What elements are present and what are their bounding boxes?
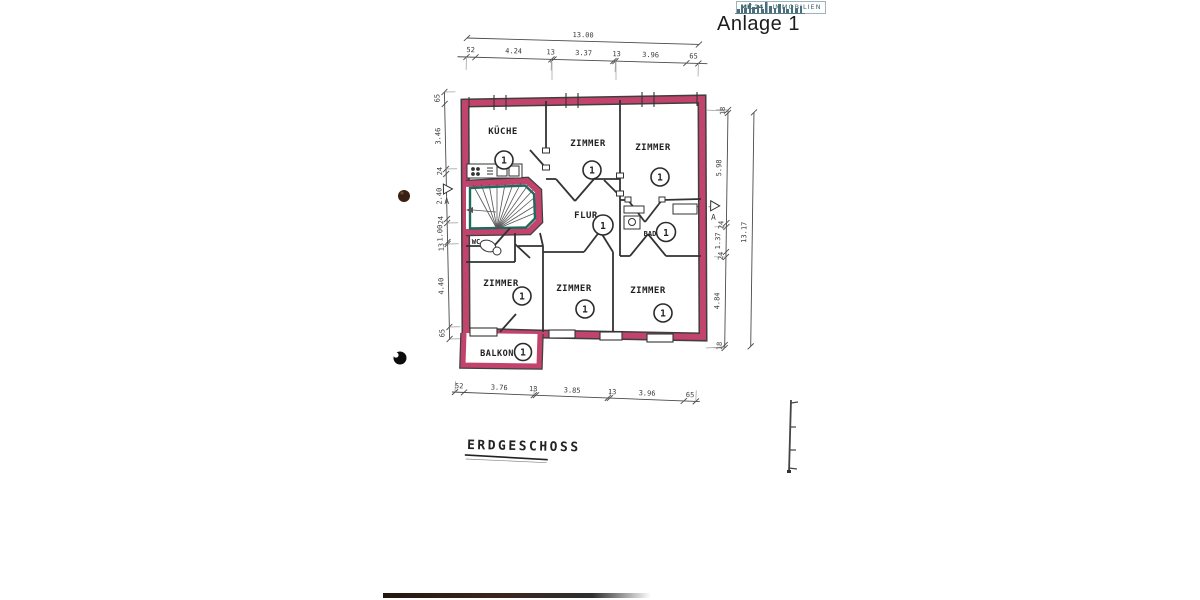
dim-top-seg: 13	[612, 50, 621, 58]
section-marker-a-left-icon	[443, 184, 452, 194]
dim-left-seg: 3.46	[434, 128, 442, 145]
room-number-kueche: 1	[501, 156, 507, 167]
dim-left-seg: 65	[438, 329, 446, 338]
dim-left-seg: 4.40	[437, 278, 445, 295]
room-label-zimmer-bottom-right: ZIMMER	[630, 286, 666, 296]
dim-bottom-seg: 13	[529, 385, 538, 393]
dim-bottom-seg: 52	[455, 382, 464, 390]
dim-bottom-seg: 3.85	[564, 386, 581, 395]
section-marker-a-left-label: A	[444, 197, 449, 206]
dim-top-seg: 13	[546, 48, 555, 56]
dimension-row-top: 13.00 52 4.24 13 3.37 13 3.96 65	[457, 28, 708, 77]
floor-title: ERDGESCHOSS	[465, 438, 581, 463]
dim-left-seg: 13	[438, 243, 446, 252]
room-labels: KÜCHE 1 ZIMMER 1 ZIMMER 1 FLUR 1 BAD 1 W…	[472, 126, 676, 361]
room-number-zimmer-bottom-mid: 1	[582, 305, 588, 316]
room-label-zimmer-top-right: ZIMMER	[635, 143, 671, 153]
dim-top-seg: 4.24	[505, 47, 522, 55]
dim-right-seg: 4.84	[713, 292, 721, 309]
page-edge-artifact	[383, 593, 651, 598]
room-label-zimmer-top-mid: ZIMMER	[570, 139, 606, 149]
dimension-row-bottom: 52 3.76 13 3.85 13 3.96 65	[452, 381, 700, 405]
dim-right-seg: 24	[717, 221, 725, 230]
dim-bottom-seg: 65	[686, 391, 695, 399]
room-label-bad: BAD	[644, 230, 657, 238]
dim-top-seg: 52	[466, 46, 475, 54]
room-number-balkon: 1	[520, 348, 526, 359]
dim-top-overall: 13.00	[572, 31, 593, 40]
dim-bottom-seg: 3.76	[491, 383, 508, 392]
room-number-zimmer-top-mid: 1	[589, 166, 595, 177]
room-number-zimmer-bottom-right: 1	[660, 309, 666, 320]
room-label-balkon: BALKON	[480, 349, 514, 359]
room-label-zimmer-bottom-mid: ZIMMER	[556, 284, 592, 294]
dim-left-seg: 65	[433, 94, 441, 103]
section-marker-a-right-icon	[711, 201, 720, 211]
dim-right-seg: 18	[716, 342, 724, 351]
building-outline: KÜCHE 1 ZIMMER 1 ZIMMER 1 FLUR 1 BAD 1 W…	[463, 62, 724, 366]
dim-left-seg: 1.00	[436, 225, 444, 242]
dim-top-seg: 3.37	[575, 49, 592, 57]
kitchen-counter	[467, 164, 522, 178]
dim-right-seg: 5.98	[715, 159, 723, 176]
dimension-column-left: 65 3.46 24 2.40 24 1.00 13 4.40 65 A	[433, 89, 460, 342]
room-number-zimmer-top-right: 1	[657, 173, 663, 184]
dim-left-seg: 2.40	[435, 188, 443, 205]
dim-top-seg: 65	[689, 52, 698, 60]
dim-top-seg: 3.96	[642, 51, 659, 59]
dim-right-seg: 24	[717, 252, 725, 261]
fold-mark-artifact	[787, 400, 798, 473]
section-marker-a-right-label: A	[711, 213, 716, 222]
room-label-kueche: KÜCHE	[488, 126, 518, 137]
room-number-bad: 1	[663, 228, 669, 239]
door-jambs	[543, 148, 666, 202]
floorplan-sheet: 13.00 52 4.24 13 3.37 13 3.96 65 52 3.76…	[0, 0, 1200, 600]
scanned-floorplan-page: { "document": { "attachment_label": "Anl…	[0, 0, 1200, 600]
floor-title-label: ERDGESCHOSS	[467, 438, 581, 455]
room-number-zimmer-bottom-left: 1	[519, 292, 525, 303]
room-number-flur: 1	[600, 221, 606, 232]
dim-right-seg: 1.37	[714, 232, 722, 249]
room-label-zimmer-bottom-left: ZIMMER	[483, 279, 519, 289]
dim-left-seg: 24	[437, 216, 445, 225]
dim-right-overall: 13.17	[740, 222, 748, 243]
dim-left-seg: 24	[436, 167, 444, 176]
punch-hole-artifact	[398, 190, 410, 202]
room-label-wc: WC	[472, 238, 480, 246]
dim-bottom-seg: 3.96	[639, 389, 656, 398]
dim-bottom-seg: 13	[608, 388, 617, 396]
